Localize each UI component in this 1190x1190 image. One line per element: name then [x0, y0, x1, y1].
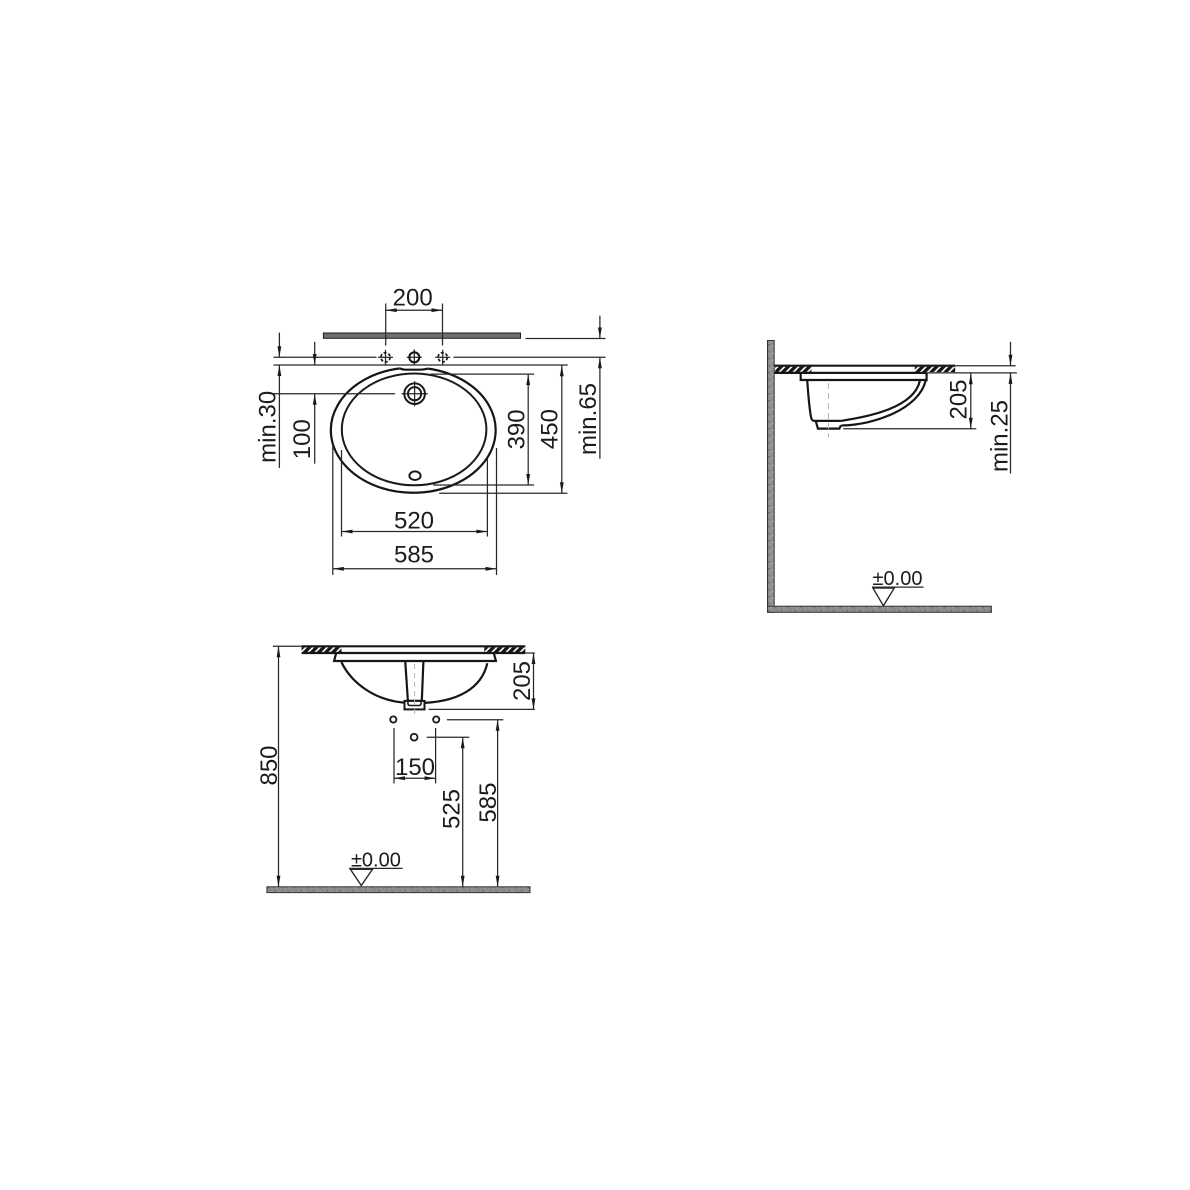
- svg-text:585: 585: [394, 542, 434, 569]
- svg-text:205: 205: [946, 379, 973, 419]
- svg-text:min.25: min.25: [987, 400, 1014, 472]
- svg-text:min.65: min.65: [575, 383, 602, 455]
- svg-text:200: 200: [393, 284, 433, 311]
- svg-text:520: 520: [394, 507, 434, 534]
- svg-text:min.30: min.30: [255, 391, 282, 463]
- svg-text:390: 390: [503, 409, 530, 449]
- svg-text:525: 525: [439, 789, 466, 829]
- svg-text:850: 850: [256, 745, 283, 785]
- svg-text:100: 100: [289, 419, 316, 459]
- svg-text:205: 205: [509, 661, 536, 701]
- svg-text:150: 150: [395, 754, 435, 781]
- svg-text:450: 450: [536, 409, 563, 449]
- svg-text:585: 585: [475, 783, 502, 823]
